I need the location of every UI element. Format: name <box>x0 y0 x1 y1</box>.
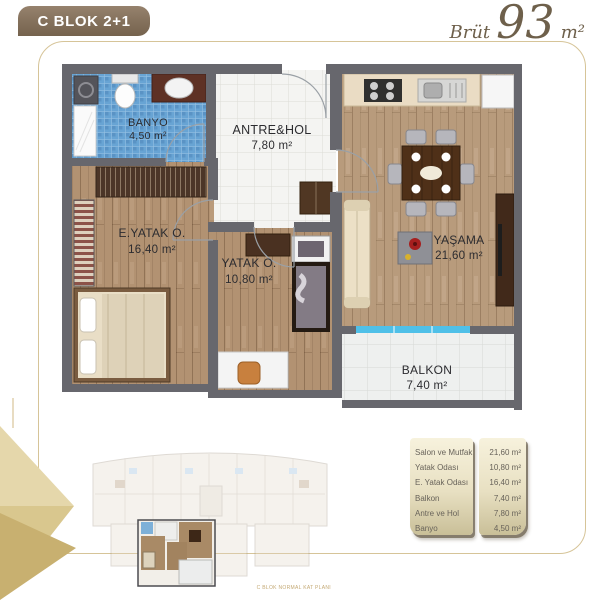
headboard-pillow <box>298 241 324 257</box>
motif-facet-light <box>0 426 74 506</box>
area-table-labels-card: Salon ve Mutfak Yatak Odası E. Yatak Oda… <box>410 438 473 535</box>
burner <box>386 82 394 90</box>
keyplan-bath <box>289 468 297 474</box>
decor-dot <box>405 254 411 260</box>
area-row-label: Balkon <box>415 491 473 506</box>
sofa-armrest <box>344 297 370 308</box>
balcony-glass <box>356 326 470 333</box>
stove <box>364 79 402 102</box>
wardrobe <box>96 167 206 197</box>
wall <box>208 240 218 392</box>
plate <box>442 153 451 162</box>
glass-band <box>356 326 470 333</box>
room-name-yasama: YAŞAMA <box>434 233 485 247</box>
keyplan-svg: C BLOK NORMAL KAT PLANI <box>85 428 335 593</box>
radiator-top <box>74 200 94 286</box>
area-row-value: 21,60 m² <box>479 445 521 460</box>
dining-chair <box>388 164 402 184</box>
unit-banyo <box>141 522 153 534</box>
wall <box>330 64 342 150</box>
wall <box>342 400 522 408</box>
area-row-label: Antre ve Hol <box>415 506 473 521</box>
sofa-armrest <box>344 200 370 211</box>
area-table-values-card: 21,60 m² 10,80 m² 16,40 m² 7,40 m² 7,80 … <box>479 438 526 535</box>
kitchen-sink <box>424 83 442 98</box>
keyplan-caption: C BLOK NORMAL KAT PLANI <box>257 585 331 591</box>
room-name-banyo: BANYO <box>128 117 168 129</box>
dining-chair <box>436 130 456 144</box>
area-row-value: 16,40 m² <box>479 475 521 490</box>
wall <box>330 192 342 232</box>
toilet-tank <box>112 74 138 83</box>
pillow <box>80 298 96 332</box>
dresser <box>246 234 290 256</box>
dining-chair <box>460 164 474 184</box>
burner <box>370 92 378 100</box>
room-name-balkon: BALKON <box>402 363 453 377</box>
wall <box>208 166 218 200</box>
wall <box>62 158 166 166</box>
tv <box>498 224 502 276</box>
wall <box>62 64 282 74</box>
desk-chair <box>238 362 260 384</box>
plate <box>442 185 451 194</box>
room-area-antre: 7,80 m² <box>251 140 292 152</box>
unit-balkon <box>179 560 212 584</box>
keyplan-highlighted-unit <box>138 520 215 586</box>
keyplan-core <box>200 486 222 516</box>
keyplan-bath <box>235 468 243 474</box>
dining-chair <box>436 202 456 216</box>
room-name-yatak: YATAK O. <box>221 256 276 270</box>
dining-chair <box>406 130 426 144</box>
table-centerpiece <box>420 166 442 180</box>
wall <box>326 64 522 74</box>
wall <box>208 222 254 232</box>
wall <box>332 232 342 398</box>
fridge <box>482 75 514 108</box>
keyplan-furn <box>115 480 125 488</box>
room-name-eyatak: E.YATAK O. <box>118 226 185 240</box>
room-area-yatak: 10,80 m² <box>225 274 273 286</box>
area-row-label: Yatak Odası <box>415 460 473 475</box>
area-row-label: Banyo <box>415 521 473 536</box>
flower-center <box>413 242 417 246</box>
area-row-value: 10,80 m² <box>479 460 521 475</box>
burner <box>370 82 378 90</box>
room-area-banyo: 4,50 m² <box>129 130 167 142</box>
brochure-page: { "header": { "badge": "C BLOK 2+1", "br… <box>0 0 600 600</box>
unit-bed <box>143 552 155 568</box>
sink <box>165 78 193 98</box>
washer <box>74 76 98 104</box>
wall <box>342 326 356 334</box>
area-row-label: E. Yatak Odası <box>415 475 473 490</box>
dining-chair <box>406 202 426 216</box>
unit-table <box>189 530 201 542</box>
room-name-antre: ANTRE&HOL <box>232 123 311 137</box>
room-area-eyatak: 16,40 m² <box>128 244 176 256</box>
keyplan-wing <box>255 524 309 566</box>
wall <box>206 64 216 166</box>
plate <box>412 185 421 194</box>
master-bed-blanket <box>102 294 164 378</box>
area-row-value: 4,50 m² <box>479 521 521 536</box>
area-row-value: 7,40 m² <box>479 491 521 506</box>
keyplan-bath <box>129 468 137 474</box>
plate <box>412 153 421 162</box>
pillow <box>80 340 96 374</box>
room-area-yasama: 21,60 m² <box>435 250 483 262</box>
wall <box>208 390 342 398</box>
room-area-balkon: 7,40 m² <box>406 380 447 392</box>
area-row-value: 7,80 m² <box>479 506 521 521</box>
area-row-label: Salon ve Mutfak <box>415 445 473 460</box>
burner <box>386 92 394 100</box>
toilet <box>115 84 135 108</box>
wall <box>62 384 216 392</box>
wall <box>470 326 522 334</box>
wall <box>62 64 72 392</box>
wall <box>514 64 522 410</box>
keyplan-furn <box>299 480 309 488</box>
keyplan-bath <box>185 468 193 474</box>
shower <box>74 106 96 156</box>
gold-motif <box>0 398 85 600</box>
